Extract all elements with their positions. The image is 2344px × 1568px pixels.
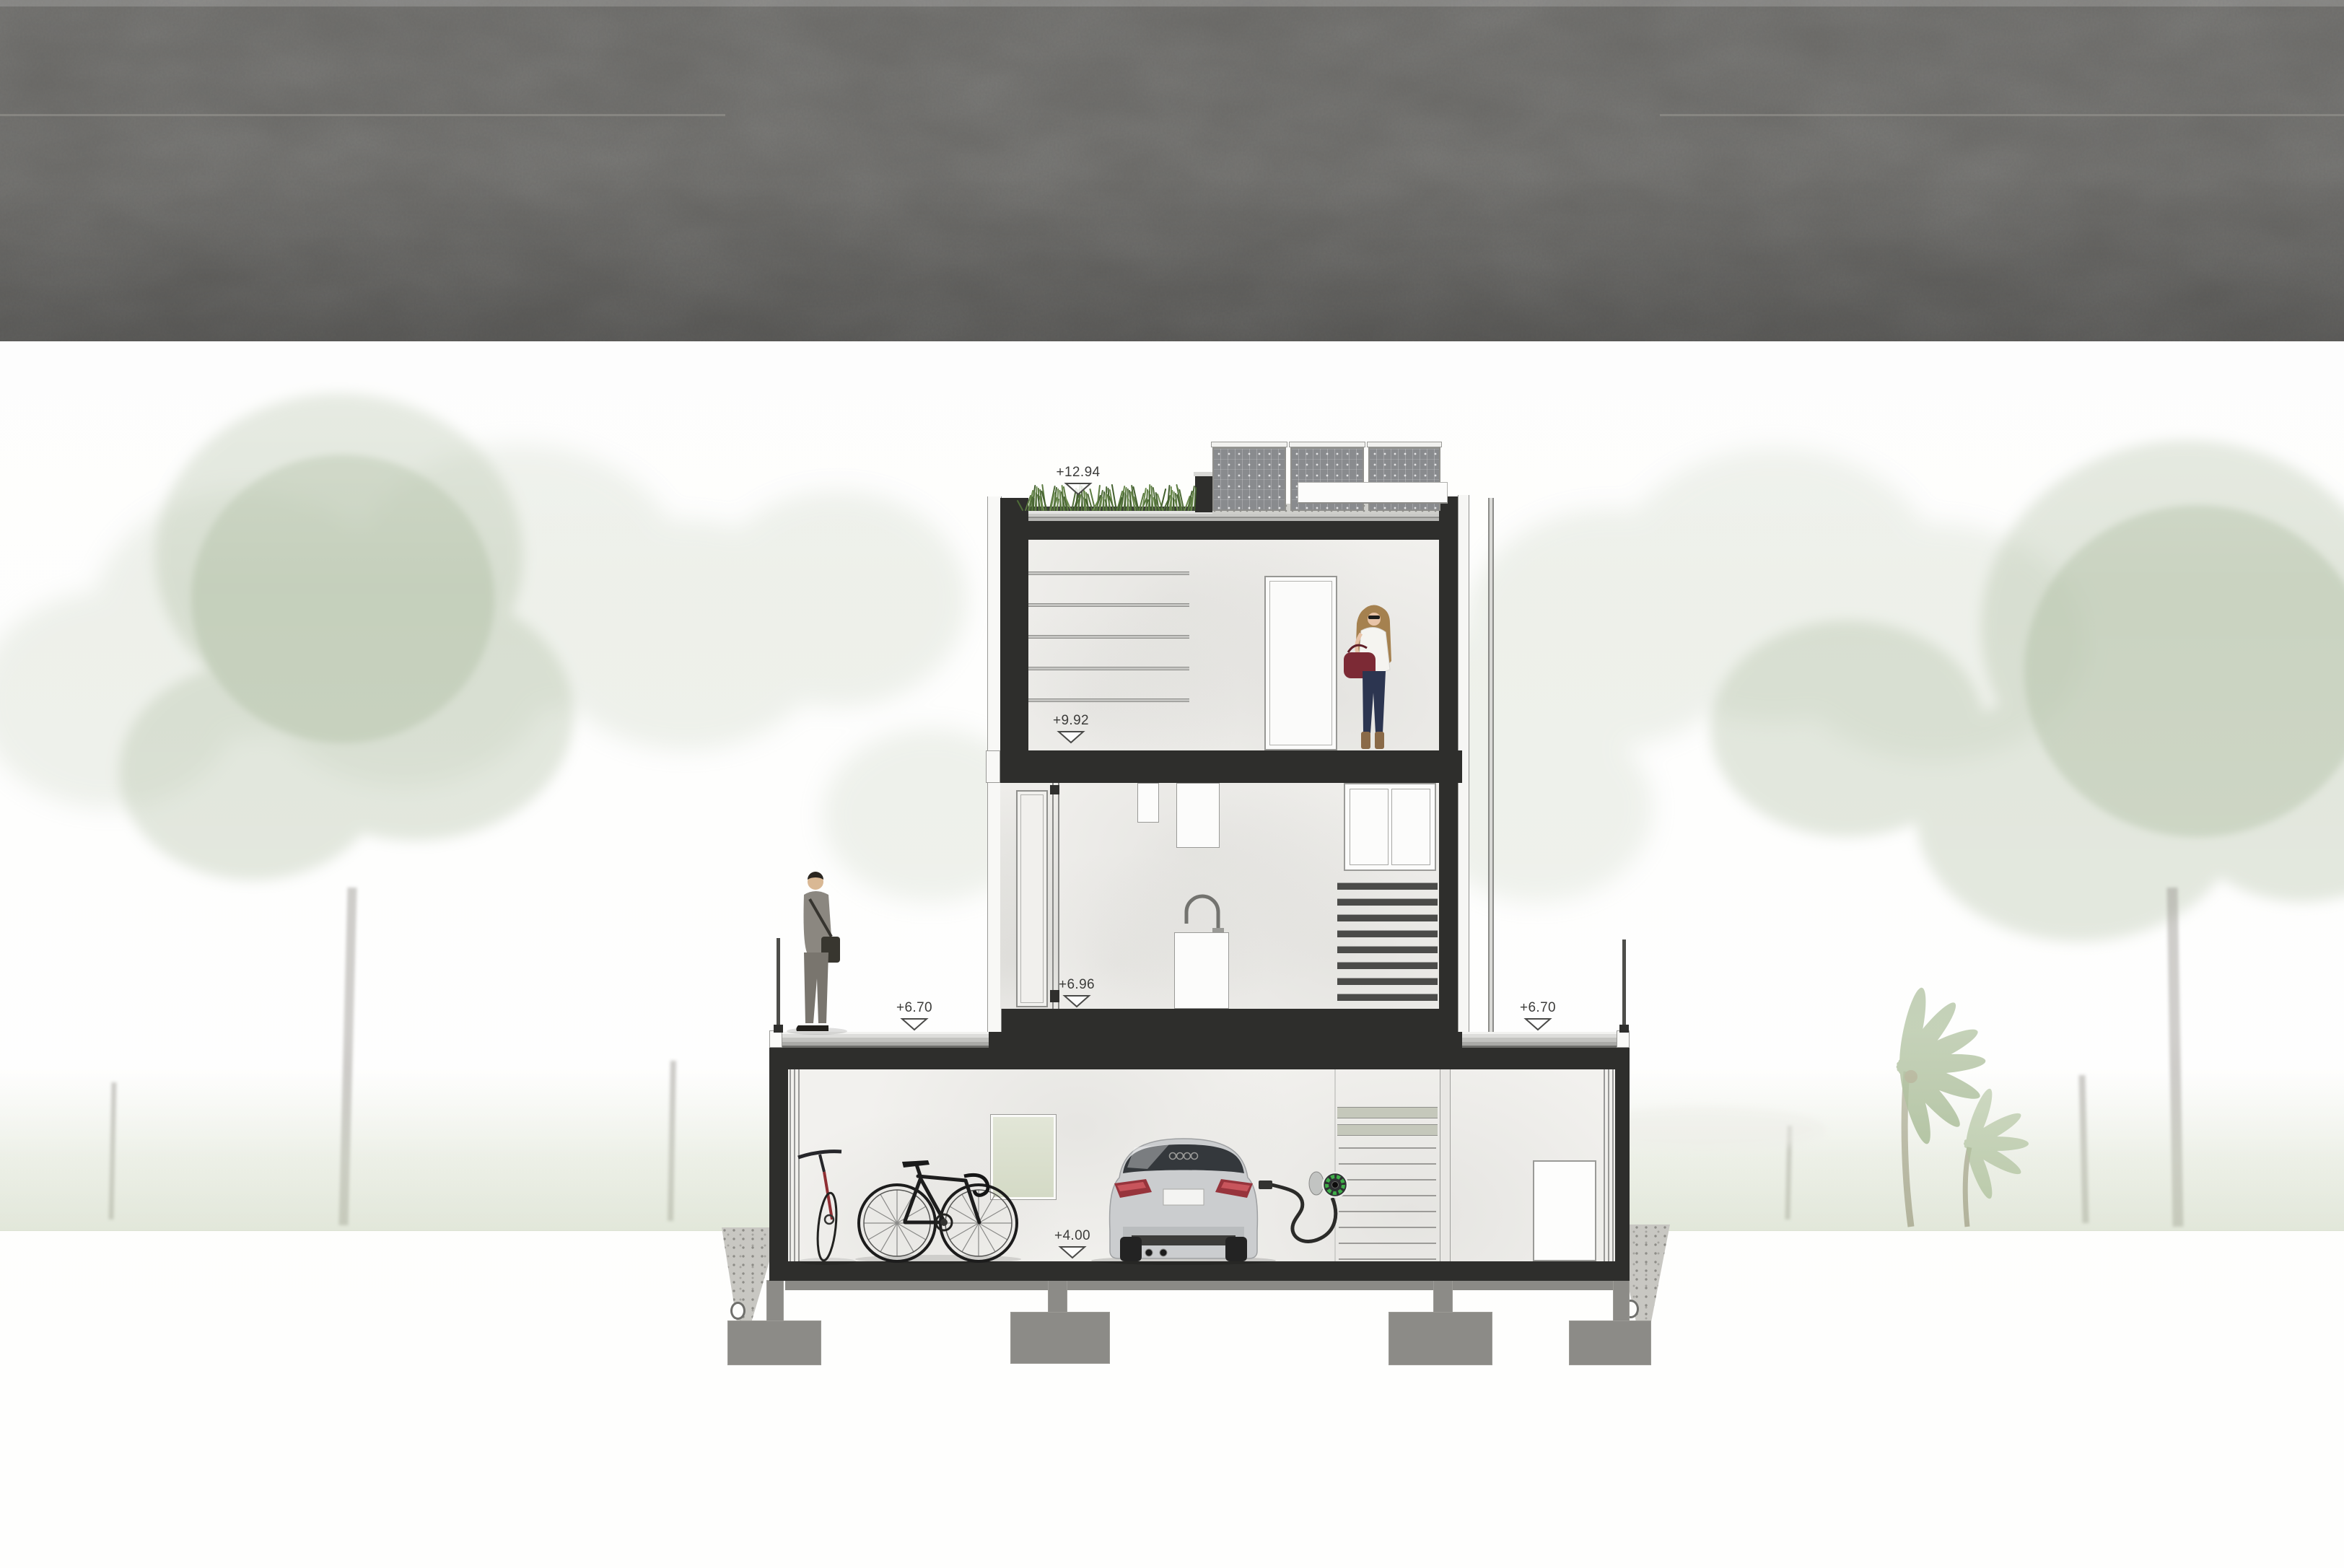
balcony-door bbox=[1016, 790, 1048, 1007]
roof-upstand-cap bbox=[1194, 472, 1214, 476]
garage-glazing-left bbox=[798, 1069, 800, 1261]
footing-pad-1 bbox=[727, 1320, 821, 1365]
footing-stem-1 bbox=[766, 1280, 784, 1323]
storage-room-door bbox=[1533, 1160, 1596, 1261]
terrace-left-end-cap bbox=[769, 1030, 782, 1048]
solar-panel-cap bbox=[1367, 442, 1442, 447]
solar-panel-cap bbox=[1289, 442, 1365, 447]
stair-tread bbox=[1339, 1211, 1436, 1212]
ground-floor-stairs bbox=[1337, 1069, 1438, 1261]
stair-tread bbox=[1337, 898, 1438, 906]
closet-shelf bbox=[1028, 603, 1189, 607]
railing-post-right-base bbox=[1619, 1025, 1629, 1033]
solar-panel bbox=[1212, 447, 1286, 511]
level-triangle-icon bbox=[1062, 994, 1091, 1008]
ground-floor-right-wall bbox=[1615, 1048, 1630, 1281]
terrace-right-deck bbox=[1462, 1032, 1630, 1048]
closet-shelf bbox=[1028, 571, 1189, 575]
stair-tread bbox=[1337, 1124, 1438, 1136]
level-triangle-icon bbox=[1523, 1017, 1552, 1031]
window-mullion bbox=[1052, 783, 1059, 1009]
closet-shelf bbox=[1028, 698, 1189, 702]
upper-floor-slab bbox=[1000, 750, 1462, 783]
level-label-terrace-left: +6.70 bbox=[896, 1000, 932, 1016]
railing-post-left bbox=[777, 938, 780, 1032]
terrace-left-deck bbox=[769, 1032, 989, 1048]
foundation-strip bbox=[785, 1280, 1617, 1290]
railing-post-left-base bbox=[774, 1025, 783, 1033]
level-label-main-floor: +6.96 bbox=[1059, 977, 1095, 993]
stair-tread bbox=[1339, 1243, 1436, 1244]
main-floor-slab bbox=[989, 1009, 1462, 1069]
ground-floor-slab bbox=[769, 1261, 1630, 1281]
garage-window bbox=[991, 1115, 1056, 1199]
level-label-terrace-right: +6.70 bbox=[1520, 1000, 1556, 1016]
footing-pad-2 bbox=[1010, 1312, 1110, 1364]
ground-shading bbox=[0, 0, 2344, 341]
main-floor-stairs bbox=[1337, 882, 1438, 1002]
railing-post-right bbox=[1622, 940, 1626, 1032]
architectural-section-scene: +12.94 +9.92 +6.96 +6.70 +6.70 +4.00 bbox=[0, 0, 2344, 1568]
level-marker-upper-floor: +9.92 bbox=[1020, 713, 1121, 744]
garage-partition-wall bbox=[1440, 1069, 1451, 1261]
stair-landing-window bbox=[1344, 783, 1436, 871]
closet-shelf bbox=[1028, 667, 1189, 670]
green-roof-soil bbox=[1028, 507, 1198, 511]
level-label-roof: +12.94 bbox=[1056, 465, 1100, 481]
garage-glazing-left bbox=[790, 1069, 791, 1261]
level-triangle-icon bbox=[900, 1017, 929, 1031]
level-triangle-icon bbox=[1058, 1245, 1087, 1259]
garage-glazing-right bbox=[1604, 1069, 1605, 1261]
stair-tread bbox=[1337, 882, 1438, 890]
footing-pad-4 bbox=[1569, 1320, 1651, 1365]
closet-shelf bbox=[1028, 635, 1189, 639]
ground-concrete bbox=[0, 0, 2344, 341]
stair-tread bbox=[1339, 1179, 1436, 1181]
level-marker-terrace-right: +6.70 bbox=[1487, 1000, 1588, 1031]
stair-tread bbox=[1339, 1195, 1436, 1196]
footing-stem-4 bbox=[1613, 1280, 1630, 1323]
stair-tread bbox=[1339, 1147, 1436, 1149]
stair-tread bbox=[1337, 962, 1438, 969]
stair-tread bbox=[1337, 978, 1438, 985]
upper-slab-end-cap bbox=[986, 750, 1000, 783]
garage-glazing-right bbox=[1612, 1069, 1614, 1261]
terrace-right-end-cap bbox=[1617, 1030, 1630, 1048]
kitchen-cabinet bbox=[1176, 783, 1220, 848]
solar-inverter-box bbox=[1298, 482, 1448, 504]
stair-divider-line bbox=[1334, 1069, 1336, 1261]
level-marker-roof: +12.94 bbox=[1028, 465, 1129, 496]
footing-pad-3 bbox=[1389, 1312, 1492, 1365]
stair-tread bbox=[1337, 914, 1438, 921]
level-label-upper-floor: +9.92 bbox=[1053, 713, 1089, 729]
level-marker-main-floor: +6.96 bbox=[1026, 977, 1127, 1008]
stair-tread bbox=[1339, 1227, 1436, 1228]
footing-stem-3 bbox=[1433, 1280, 1453, 1315]
solar-panel-cap bbox=[1211, 442, 1287, 447]
downpipe bbox=[1488, 498, 1494, 1032]
level-marker-garage-floor: +4.00 bbox=[1022, 1228, 1123, 1259]
garage-interior bbox=[788, 1069, 1615, 1261]
stair-tread bbox=[1339, 1258, 1436, 1260]
level-triangle-icon bbox=[1057, 730, 1085, 744]
stair-tread bbox=[1337, 994, 1438, 1001]
level-marker-terrace-left: +6.70 bbox=[864, 1000, 965, 1031]
ground-floor-left-wall bbox=[769, 1048, 788, 1281]
stair-tread bbox=[1337, 946, 1438, 953]
level-label-garage-floor: +4.00 bbox=[1054, 1228, 1090, 1244]
kitchen-sink-unit bbox=[1174, 932, 1229, 1009]
garage-glazing-right bbox=[1608, 1069, 1609, 1261]
roof-slab bbox=[1028, 521, 1439, 540]
roof-upstand bbox=[1195, 475, 1212, 512]
kitchen-cabinet-small bbox=[1137, 783, 1159, 823]
garage-glazing-left bbox=[794, 1069, 795, 1261]
terrace-left-fascia bbox=[769, 1048, 989, 1069]
terrace-right-fascia bbox=[1462, 1048, 1630, 1069]
top-floor-door bbox=[1264, 576, 1337, 750]
footing-stem-2 bbox=[1048, 1280, 1067, 1315]
stair-tread bbox=[1337, 1107, 1438, 1118]
stair-tread bbox=[1337, 930, 1438, 937]
level-triangle-icon bbox=[1064, 482, 1093, 496]
drain-pipe-left bbox=[730, 1302, 745, 1320]
stair-tread bbox=[1339, 1163, 1436, 1165]
